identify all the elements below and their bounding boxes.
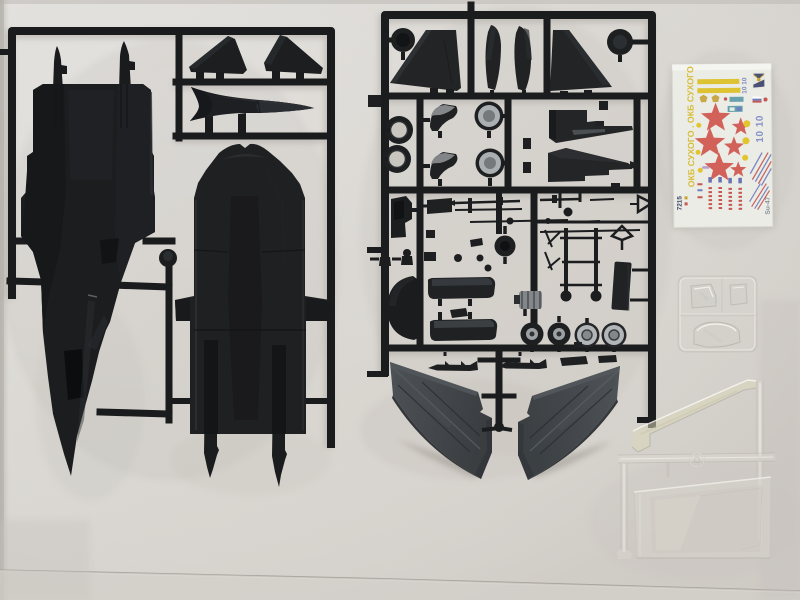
svg-text:7215: 7215 [677, 196, 684, 211]
svg-text:10 10: 10 10 [741, 77, 748, 94]
svg-text:Su-47: Su-47 [765, 196, 772, 214]
svg-text:10 10: 10 10 [755, 115, 766, 143]
svg-text:ОКБ СУХОГО . ОКБ СУХОГО: ОКБ СУХОГО . ОКБ СУХОГО [685, 66, 696, 187]
